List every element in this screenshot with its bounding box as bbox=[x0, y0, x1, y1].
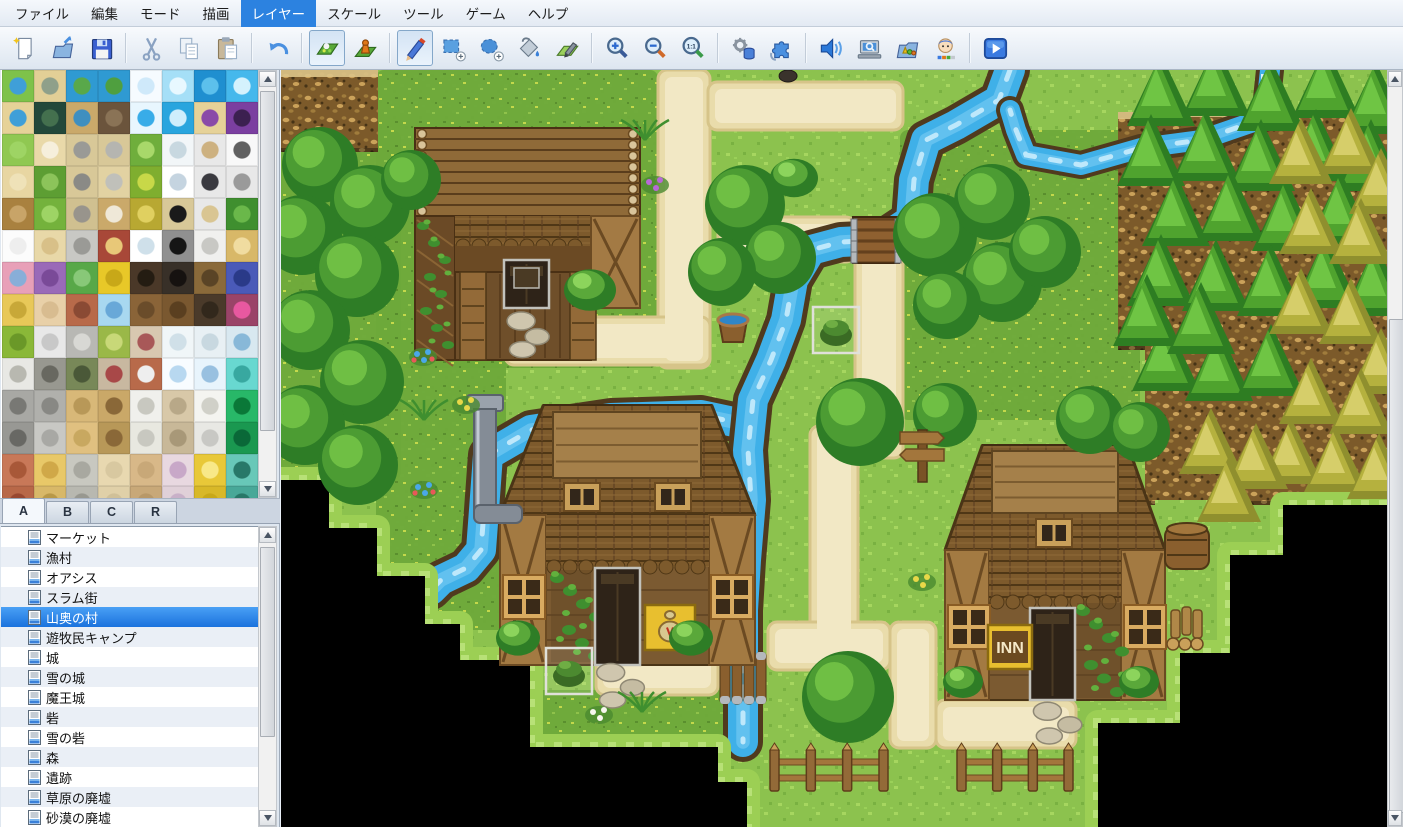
palette-tile-0-4[interactable] bbox=[130, 70, 162, 102]
scroll-thumb[interactable] bbox=[1389, 319, 1403, 813]
palette-tile-1-6[interactable] bbox=[194, 102, 226, 134]
undo-icon bbox=[264, 35, 291, 62]
palette-tile-5-4[interactable] bbox=[130, 230, 162, 262]
zoom-out-icon bbox=[642, 35, 669, 62]
palette-tile-6-6[interactable] bbox=[194, 262, 226, 294]
rpg-maker-window: { "menu": { "items": [ {"label":"ファイル","… bbox=[0, 0, 1403, 827]
map-file-icon bbox=[28, 750, 41, 765]
zoom-in-icon bbox=[604, 35, 631, 62]
map-list-item-10[interactable]: 雪の砦 bbox=[1, 727, 258, 747]
palette-tile-5-6[interactable] bbox=[194, 230, 226, 262]
map-canvas-scrollbar[interactable] bbox=[1387, 70, 1403, 827]
svg-text:1:1: 1:1 bbox=[686, 43, 696, 50]
event-search-icon bbox=[856, 35, 883, 62]
palette-tab-R[interactable]: R bbox=[134, 501, 177, 523]
menu-0[interactable]: ファイル bbox=[4, 0, 80, 27]
map-canvas[interactable]: INN bbox=[281, 70, 1387, 827]
menu-4[interactable]: レイヤー bbox=[241, 0, 317, 27]
palette-tile-0-5[interactable] bbox=[162, 70, 194, 102]
save-project-button[interactable] bbox=[83, 30, 119, 66]
resource-manager-button[interactable] bbox=[889, 30, 925, 66]
palette-tile-2-1[interactable] bbox=[34, 134, 66, 166]
palette-tile-5-1[interactable] bbox=[34, 230, 66, 262]
map-list-item-4[interactable]: 山奥の村 bbox=[1, 607, 258, 627]
playtest-button[interactable] bbox=[977, 30, 1013, 66]
zoom-out-button[interactable] bbox=[637, 30, 673, 66]
palette-tile-3-1[interactable] bbox=[34, 166, 66, 198]
menu-2[interactable]: モード bbox=[129, 0, 192, 27]
palette-tile-0-6[interactable] bbox=[194, 70, 226, 102]
palette-tile-12-4[interactable] bbox=[130, 454, 162, 486]
toolbar-separator bbox=[717, 33, 719, 63]
scroll-down-button[interactable] bbox=[1388, 810, 1402, 826]
palette-tile-5-2[interactable] bbox=[66, 230, 98, 262]
palette-tile-11-7[interactable] bbox=[226, 422, 258, 454]
palette-tile-7-6[interactable] bbox=[194, 294, 226, 326]
map-list-item-6[interactable]: 城 bbox=[1, 647, 258, 667]
zoom-actual-icon: 1:1 bbox=[680, 35, 707, 62]
palette-tile-13-3[interactable] bbox=[98, 486, 130, 498]
open-project-button[interactable] bbox=[45, 30, 81, 66]
palette-tile-11-4[interactable] bbox=[130, 422, 162, 454]
palette-tile-5-7[interactable] bbox=[226, 230, 258, 262]
palette-tile-13-6[interactable] bbox=[194, 486, 226, 498]
palette-tile-8-1[interactable] bbox=[34, 326, 66, 358]
palette-tile-12-6[interactable] bbox=[194, 454, 226, 486]
palette-tile-2-3[interactable] bbox=[98, 134, 130, 166]
palette-tile-2-6[interactable] bbox=[194, 134, 226, 166]
palette-tile-0-1[interactable] bbox=[34, 70, 66, 102]
map-list-item-2[interactable]: オアシス bbox=[1, 567, 258, 587]
menu-1[interactable]: 編集 bbox=[80, 0, 129, 27]
palette-tile-11-6[interactable] bbox=[194, 422, 226, 454]
palette-tile-6-2[interactable] bbox=[66, 262, 98, 294]
palette-tile-3-5[interactable] bbox=[162, 166, 194, 198]
palette-tile-12-7[interactable] bbox=[226, 454, 258, 486]
scroll-down-button[interactable] bbox=[259, 481, 276, 497]
database-icon bbox=[730, 35, 757, 62]
resource-manager-icon bbox=[894, 35, 921, 62]
scroll-thumb[interactable] bbox=[260, 91, 275, 431]
palette-tile-10-5[interactable] bbox=[162, 390, 194, 422]
palette-tile-4-7[interactable] bbox=[226, 198, 258, 230]
palette-tile-13-7[interactable] bbox=[226, 486, 258, 498]
palette-tile-11-1[interactable] bbox=[34, 422, 66, 454]
palette-tile-1-1[interactable] bbox=[34, 102, 66, 134]
palette-tile-6-1[interactable] bbox=[34, 262, 66, 294]
toolbar-separator bbox=[591, 33, 593, 63]
menu-7[interactable]: ゲーム bbox=[455, 0, 517, 27]
cut-icon bbox=[138, 35, 165, 62]
palette-tile-1-7[interactable] bbox=[226, 102, 258, 134]
palette-tile-2-7[interactable] bbox=[226, 134, 258, 166]
palette-tab-C[interactable]: C bbox=[90, 501, 133, 523]
scroll-up-button[interactable] bbox=[1388, 71, 1402, 87]
map-file-icon bbox=[28, 710, 41, 725]
sound-test-icon bbox=[818, 35, 845, 62]
left-panel: ABCR マーケット漁村オアシススラム街山奥の村遊牧民キャンプ城雪の城魔王城砦雪… bbox=[0, 70, 280, 827]
palette-tile-1-3[interactable] bbox=[98, 102, 130, 134]
palette-tile-0-2[interactable] bbox=[66, 70, 98, 102]
toolbar-separator bbox=[389, 33, 391, 63]
palette-tile-9-5[interactable] bbox=[162, 358, 194, 390]
palette-tile-4-6[interactable] bbox=[194, 198, 226, 230]
palette-tile-8-5[interactable] bbox=[162, 326, 194, 358]
map-mode-icon bbox=[314, 35, 341, 62]
palette-tile-12-5[interactable] bbox=[162, 454, 194, 486]
copy-button[interactable] bbox=[171, 30, 207, 66]
palette-tile-4-1[interactable] bbox=[34, 198, 66, 230]
palette-tile-0-7[interactable] bbox=[226, 70, 258, 102]
palette-tile-11-2[interactable] bbox=[66, 422, 98, 454]
palette-tile-11-0[interactable] bbox=[2, 422, 34, 454]
tileset-palette[interactable] bbox=[1, 70, 258, 498]
toolbar: 1:1 bbox=[0, 27, 1403, 70]
map-file-icon bbox=[28, 630, 41, 645]
palette-tile-11-5[interactable] bbox=[162, 422, 194, 454]
map-mode-button[interactable] bbox=[309, 30, 345, 66]
new-project-button[interactable] bbox=[7, 30, 43, 66]
map-list-scrollbar[interactable] bbox=[258, 526, 277, 827]
palette-tile-10-0[interactable] bbox=[2, 390, 34, 422]
palette-scrollbar[interactable] bbox=[258, 70, 277, 498]
palette-tile-13-0[interactable] bbox=[2, 486, 34, 498]
map-list-item-0[interactable]: マーケット bbox=[1, 527, 258, 547]
palette-tile-6-7[interactable] bbox=[226, 262, 258, 294]
palette-tile-7-3[interactable] bbox=[98, 294, 130, 326]
undo-button[interactable] bbox=[259, 30, 295, 66]
map-file-icon bbox=[28, 590, 41, 605]
toolbar-separator bbox=[805, 33, 807, 63]
palette-tile-9-0[interactable] bbox=[2, 358, 34, 390]
palette-tile-13-2[interactable] bbox=[66, 486, 98, 498]
palette-tile-12-0[interactable] bbox=[2, 454, 34, 486]
map-canvas-area[interactable]: INN bbox=[281, 70, 1387, 827]
menu-6[interactable]: ツール bbox=[392, 0, 455, 27]
playtest-icon bbox=[982, 35, 1009, 62]
paste-icon bbox=[214, 35, 241, 62]
palette-tile-9-6[interactable] bbox=[194, 358, 226, 390]
palette-tile-6-3[interactable] bbox=[98, 262, 130, 294]
map-file-icon bbox=[28, 810, 41, 825]
flood-fill-icon bbox=[516, 35, 543, 62]
palette-tile-4-4[interactable] bbox=[130, 198, 162, 230]
palette-tile-12-1[interactable] bbox=[34, 454, 66, 486]
palette-tile-2-4[interactable] bbox=[130, 134, 162, 166]
palette-tile-1-2[interactable] bbox=[66, 102, 98, 134]
sound-test-button[interactable] bbox=[813, 30, 849, 66]
event-mode-icon bbox=[352, 35, 379, 62]
map-file-icon bbox=[28, 670, 41, 685]
palette-tile-6-4[interactable] bbox=[130, 262, 162, 294]
palette-tile-10-7[interactable] bbox=[226, 390, 258, 422]
palette-tile-5-0[interactable] bbox=[2, 230, 34, 262]
save-project-icon bbox=[88, 35, 115, 62]
cut-button[interactable] bbox=[133, 30, 169, 66]
new-project-icon bbox=[12, 35, 39, 62]
palette-tile-1-4[interactable] bbox=[130, 102, 162, 134]
database-button[interactable] bbox=[725, 30, 761, 66]
palette-tile-3-2[interactable] bbox=[66, 166, 98, 198]
palette-tile-10-1[interactable] bbox=[34, 390, 66, 422]
character-generator-icon bbox=[932, 35, 959, 62]
palette-tile-2-2[interactable] bbox=[66, 134, 98, 166]
map-list-item-1[interactable]: 漁村 bbox=[1, 547, 258, 567]
menu-5[interactable]: スケール bbox=[316, 0, 392, 27]
map-list-item-12[interactable]: 遺跡 bbox=[1, 767, 258, 787]
palette-tile-9-1[interactable] bbox=[34, 358, 66, 390]
map-file-icon bbox=[28, 530, 41, 545]
palette-tile-7-2[interactable] bbox=[66, 294, 98, 326]
menu-3[interactable]: 描画 bbox=[192, 0, 241, 27]
map-file-icon bbox=[28, 690, 41, 705]
palette-tile-7-5[interactable] bbox=[162, 294, 194, 326]
palette-tile-1-5[interactable] bbox=[162, 102, 194, 134]
palette-tile-3-4[interactable] bbox=[130, 166, 162, 198]
map-list-item-8[interactable]: 魔王城 bbox=[1, 687, 258, 707]
palette-tile-5-3[interactable] bbox=[98, 230, 130, 262]
palette-tile-1-0[interactable] bbox=[2, 102, 34, 134]
toolbar-separator bbox=[301, 33, 303, 63]
palette-tile-4-5[interactable] bbox=[162, 198, 194, 230]
plugin-manager-icon bbox=[768, 35, 795, 62]
paste-button[interactable] bbox=[209, 30, 245, 66]
palette-tile-7-4[interactable] bbox=[130, 294, 162, 326]
map-list-item-11[interactable]: 森 bbox=[1, 747, 258, 767]
palette-tile-13-1[interactable] bbox=[34, 486, 66, 498]
map-list[interactable]: マーケット漁村オアシススラム街山奥の村遊牧民キャンプ城雪の城魔王城砦雪の砦森遺跡… bbox=[1, 526, 258, 827]
scroll-thumb[interactable] bbox=[260, 547, 275, 737]
palette-tile-7-1[interactable] bbox=[34, 294, 66, 326]
open-project-icon bbox=[50, 35, 77, 62]
menu-8[interactable]: ヘルプ bbox=[517, 0, 580, 27]
event-mode-button[interactable] bbox=[347, 30, 383, 66]
palette-tile-3-3[interactable] bbox=[98, 166, 130, 198]
map-list-item-5[interactable]: 遊牧民キャンプ bbox=[1, 627, 258, 647]
character-generator-button[interactable] bbox=[927, 30, 963, 66]
palette-tile-13-5[interactable] bbox=[162, 486, 194, 498]
tileset-tab-bar: ABCR bbox=[0, 498, 280, 524]
map-list-item-14[interactable]: 砂漠の廃墟 bbox=[1, 807, 258, 827]
menu-bar: ファイル編集モード描画レイヤースケールツールゲームヘルプ bbox=[0, 0, 1403, 27]
map-file-icon bbox=[28, 610, 41, 625]
palette-tile-6-0[interactable] bbox=[2, 262, 34, 294]
map-file-icon bbox=[28, 790, 41, 805]
map-list-item-9[interactable]: 砦 bbox=[1, 707, 258, 727]
palette-tile-7-7[interactable] bbox=[226, 294, 258, 326]
scroll-down-button[interactable] bbox=[259, 810, 276, 826]
scroll-up-button[interactable] bbox=[259, 71, 276, 87]
pencil-icon bbox=[402, 35, 429, 62]
palette-tile-6-5[interactable] bbox=[162, 262, 194, 294]
palette-tile-10-3[interactable] bbox=[98, 390, 130, 422]
palette-tile-9-3[interactable] bbox=[98, 358, 130, 390]
palette-tile-4-2[interactable] bbox=[66, 198, 98, 230]
palette-tile-12-2[interactable] bbox=[66, 454, 98, 486]
palette-tile-9-2[interactable] bbox=[66, 358, 98, 390]
toolbar-separator bbox=[969, 33, 971, 63]
ellipse-select-button[interactable] bbox=[473, 30, 509, 66]
palette-tile-7-0[interactable] bbox=[2, 294, 34, 326]
palette-tile-3-7[interactable] bbox=[226, 166, 258, 198]
map-list-item-7[interactable]: 雪の城 bbox=[1, 667, 258, 687]
palette-tile-3-6[interactable] bbox=[194, 166, 226, 198]
palette-tile-9-4[interactable] bbox=[130, 358, 162, 390]
palette-tile-4-3[interactable] bbox=[98, 198, 130, 230]
palette-tile-0-0[interactable] bbox=[2, 70, 34, 102]
palette-tile-8-6[interactable] bbox=[194, 326, 226, 358]
flood-fill-button[interactable] bbox=[511, 30, 547, 66]
palette-tile-8-3[interactable] bbox=[98, 326, 130, 358]
toolbar-separator bbox=[251, 33, 253, 63]
pencil-button[interactable] bbox=[397, 30, 433, 66]
palette-tile-2-0[interactable] bbox=[2, 134, 34, 166]
map-list-item-3[interactable]: スラム街 bbox=[1, 587, 258, 607]
palette-tile-11-3[interactable] bbox=[98, 422, 130, 454]
svg-text:INN: INN bbox=[996, 640, 1024, 657]
map-list-item-13[interactable]: 草原の廃墟 bbox=[1, 787, 258, 807]
zoom-actual-button[interactable]: 1:1 bbox=[675, 30, 711, 66]
palette-tile-8-0[interactable] bbox=[2, 326, 34, 358]
palette-tile-8-4[interactable] bbox=[130, 326, 162, 358]
scroll-up-button[interactable] bbox=[259, 527, 276, 543]
palette-tile-12-3[interactable] bbox=[98, 454, 130, 486]
event-search-button[interactable] bbox=[851, 30, 887, 66]
zoom-in-button[interactable] bbox=[599, 30, 635, 66]
palette-tile-13-4[interactable] bbox=[130, 486, 162, 498]
map-file-icon bbox=[28, 730, 41, 745]
copy-icon bbox=[176, 35, 203, 62]
palette-tile-3-0[interactable] bbox=[2, 166, 34, 198]
map-file-icon bbox=[28, 550, 41, 565]
palette-tile-10-2[interactable] bbox=[66, 390, 98, 422]
palette-tile-10-4[interactable] bbox=[130, 390, 162, 422]
palette-tile-8-2[interactable] bbox=[66, 326, 98, 358]
plugin-manager-button[interactable] bbox=[763, 30, 799, 66]
rect-select-button[interactable] bbox=[435, 30, 471, 66]
palette-tile-5-5[interactable] bbox=[162, 230, 194, 262]
palette-tile-2-5[interactable] bbox=[162, 134, 194, 166]
toolbar-separator bbox=[125, 33, 127, 63]
palette-tile-4-0[interactable] bbox=[2, 198, 34, 230]
palette-tab-B[interactable]: B bbox=[46, 501, 89, 523]
palette-tile-10-6[interactable] bbox=[194, 390, 226, 422]
map-file-icon bbox=[28, 650, 41, 665]
palette-tile-0-3[interactable] bbox=[98, 70, 130, 102]
palette-tile-8-7[interactable] bbox=[226, 326, 258, 358]
map-file-icon bbox=[28, 570, 41, 585]
map-file-icon bbox=[28, 770, 41, 785]
palette-tile-9-7[interactable] bbox=[226, 358, 258, 390]
shadow-pen-icon bbox=[554, 35, 581, 62]
shadow-pen-button[interactable] bbox=[549, 30, 585, 66]
palette-tab-A[interactable]: A bbox=[2, 498, 45, 523]
ellipse-select-icon bbox=[478, 35, 505, 62]
rect-select-icon bbox=[440, 35, 467, 62]
